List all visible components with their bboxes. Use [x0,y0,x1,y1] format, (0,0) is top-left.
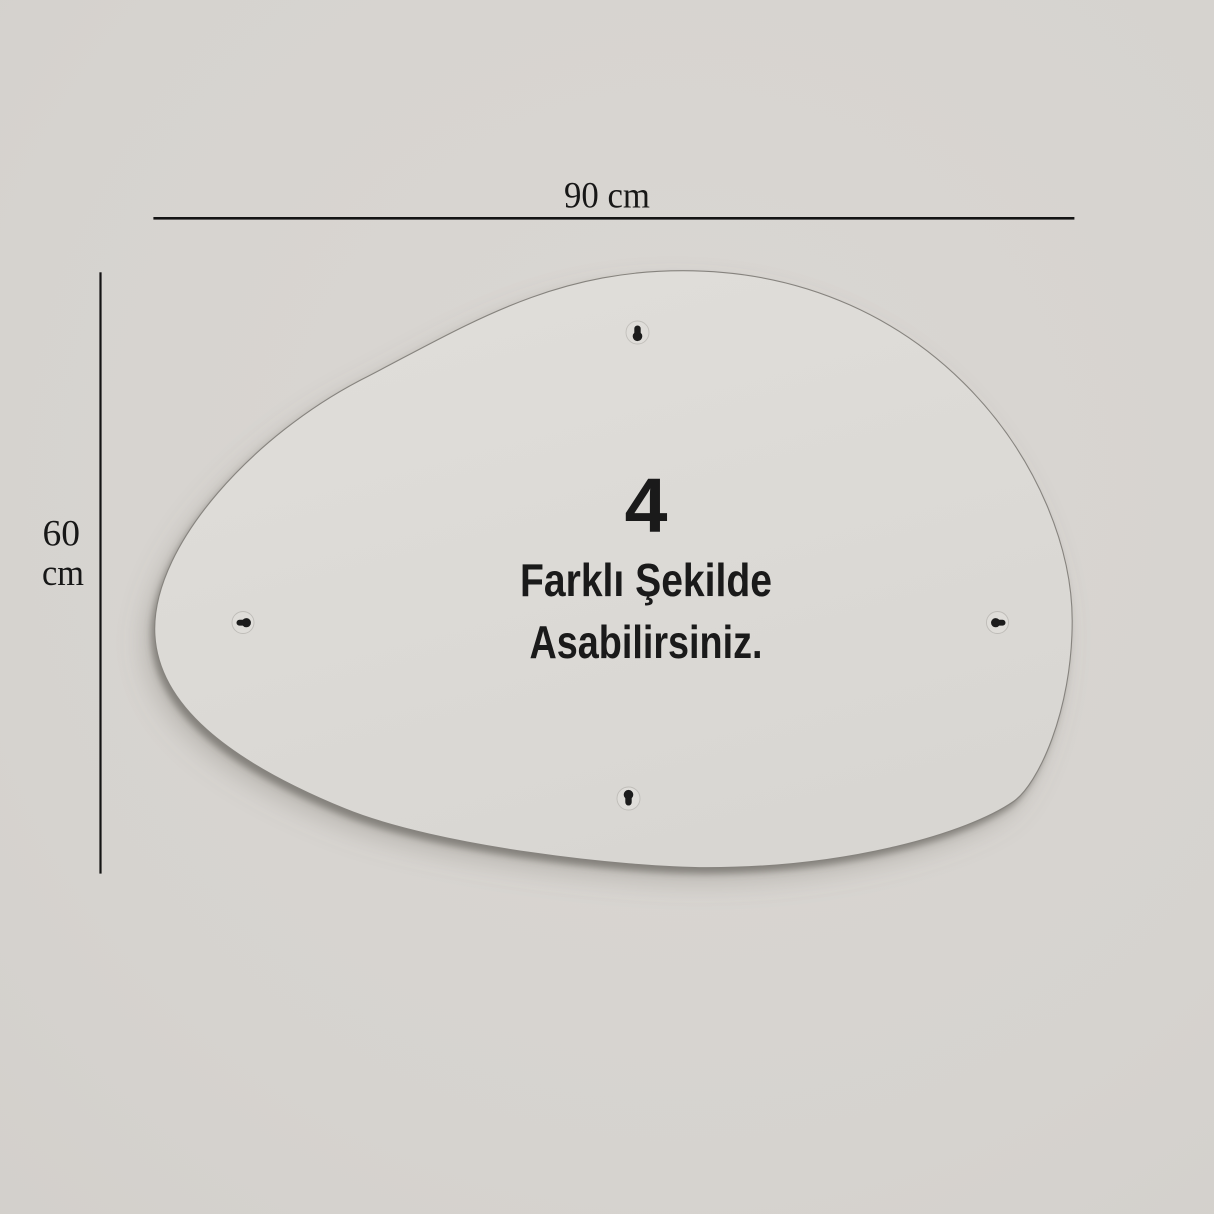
svg-text:90 cm: 90 cm [564,175,650,216]
svg-text:Farklı Şekilde: Farklı Şekilde [520,554,772,606]
svg-text:4: 4 [625,463,668,549]
svg-text:cm: cm [42,553,84,594]
svg-text:Asabilirsiniz.: Asabilirsiniz. [530,616,763,668]
svg-text:60: 60 [43,514,81,555]
